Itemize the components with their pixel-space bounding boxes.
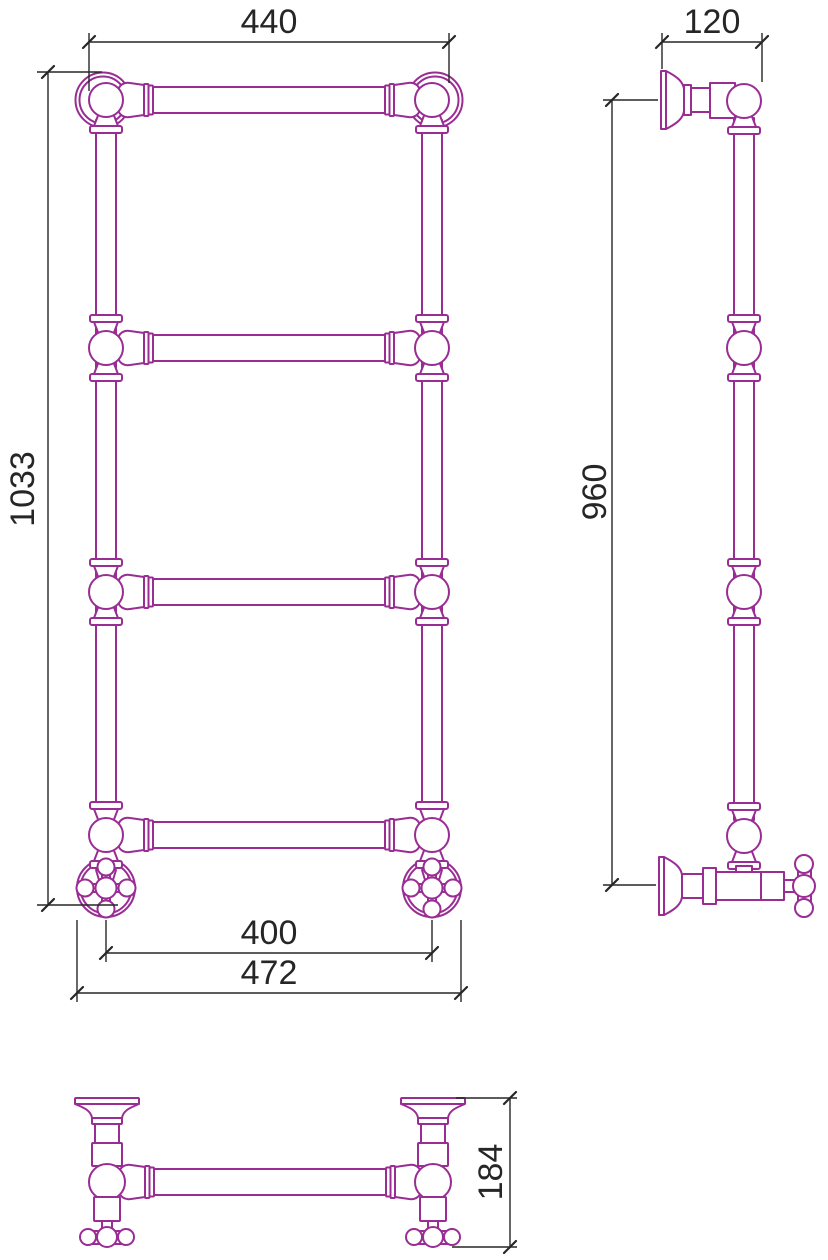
dimension-side-depth: 120 [656,3,768,82]
dimension-label-plan-depth: 184 [472,1144,510,1201]
wall-bracket-top [661,71,735,129]
dimension-label-pipe-spacing: 400 [241,914,298,952]
dimension-label-overall-width: 472 [241,954,298,992]
dimension-mount-height: 960 [576,94,658,891]
post-right [422,120,442,810]
dimension-label-front-top-width: 440 [241,3,298,41]
valve-handle-side [793,855,815,917]
joint-left-mid1 [89,315,123,381]
dimensions: 440 1033 400 472 120 [4,3,768,1253]
side-post [734,118,754,820]
corner-joint-top-left [89,83,123,133]
rung-4 [118,818,420,852]
corner-joint-top-right [415,83,449,133]
dimension-label-side-depth: 120 [684,3,741,41]
towel-rail-technical-drawing: 440 1033 400 472 120 [0,0,828,1260]
rung-1 [118,83,420,117]
side-joint-mid1 [727,315,761,381]
rung-2 [118,331,420,365]
post-left [96,120,116,810]
joint-right-mid1 [415,315,449,381]
dimension-front-top-width: 440 [83,3,455,91]
front-view [76,73,463,918]
dimension-plan-depth: 184 [452,1092,517,1253]
dimension-label-mount-height: 960 [576,464,614,521]
plan-rung [119,1165,421,1199]
side-joint-top [727,84,761,134]
joint-left-mid2 [89,559,123,625]
dimension-label-front-height: 1033 [4,451,42,527]
joint-right-mid2 [415,559,449,625]
plan-view [75,1098,465,1247]
side-view [659,71,815,917]
rung-3 [118,575,420,609]
side-joint-bottom [727,803,761,869]
side-joint-mid2 [727,559,761,625]
